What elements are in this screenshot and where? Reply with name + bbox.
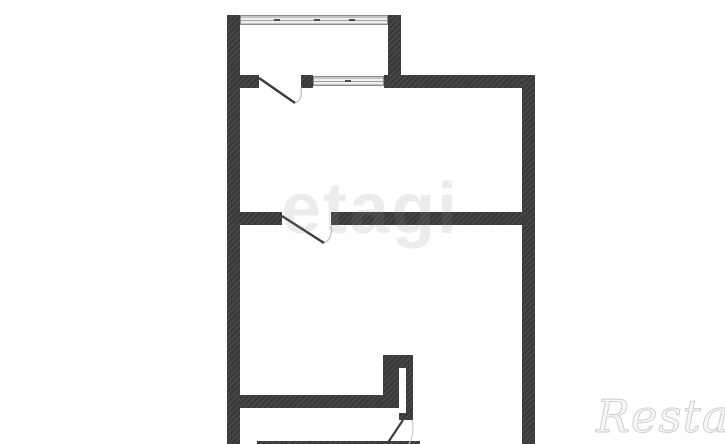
window-top-balcony [240,15,388,25]
wall-doorway-jog-rightstrip [406,355,413,420]
wall-right [522,75,535,444]
wall-left [227,15,240,444]
watermark-etagi: etagi [281,168,459,250]
window-tick-icon [349,19,355,21]
wall-doorway-jog-close [399,413,413,420]
balcony-door-arc [295,87,301,103]
wall-divider-segment-left [240,75,259,88]
wall-divider-segment-right [384,75,535,88]
balcony-door-leaf [259,78,295,103]
window-tick-icon [345,80,351,82]
window-tick-icon [274,19,280,21]
wall-bottom [240,395,399,408]
wall-divider-segment-mid [301,75,313,88]
floor-plan-canvas: etagi Restate [0,0,725,444]
window-balcony-inner [313,76,384,86]
watermark-restate: Restate [596,390,725,443]
window-tick-icon [314,19,320,21]
wall-middle-segment-left [240,212,282,225]
